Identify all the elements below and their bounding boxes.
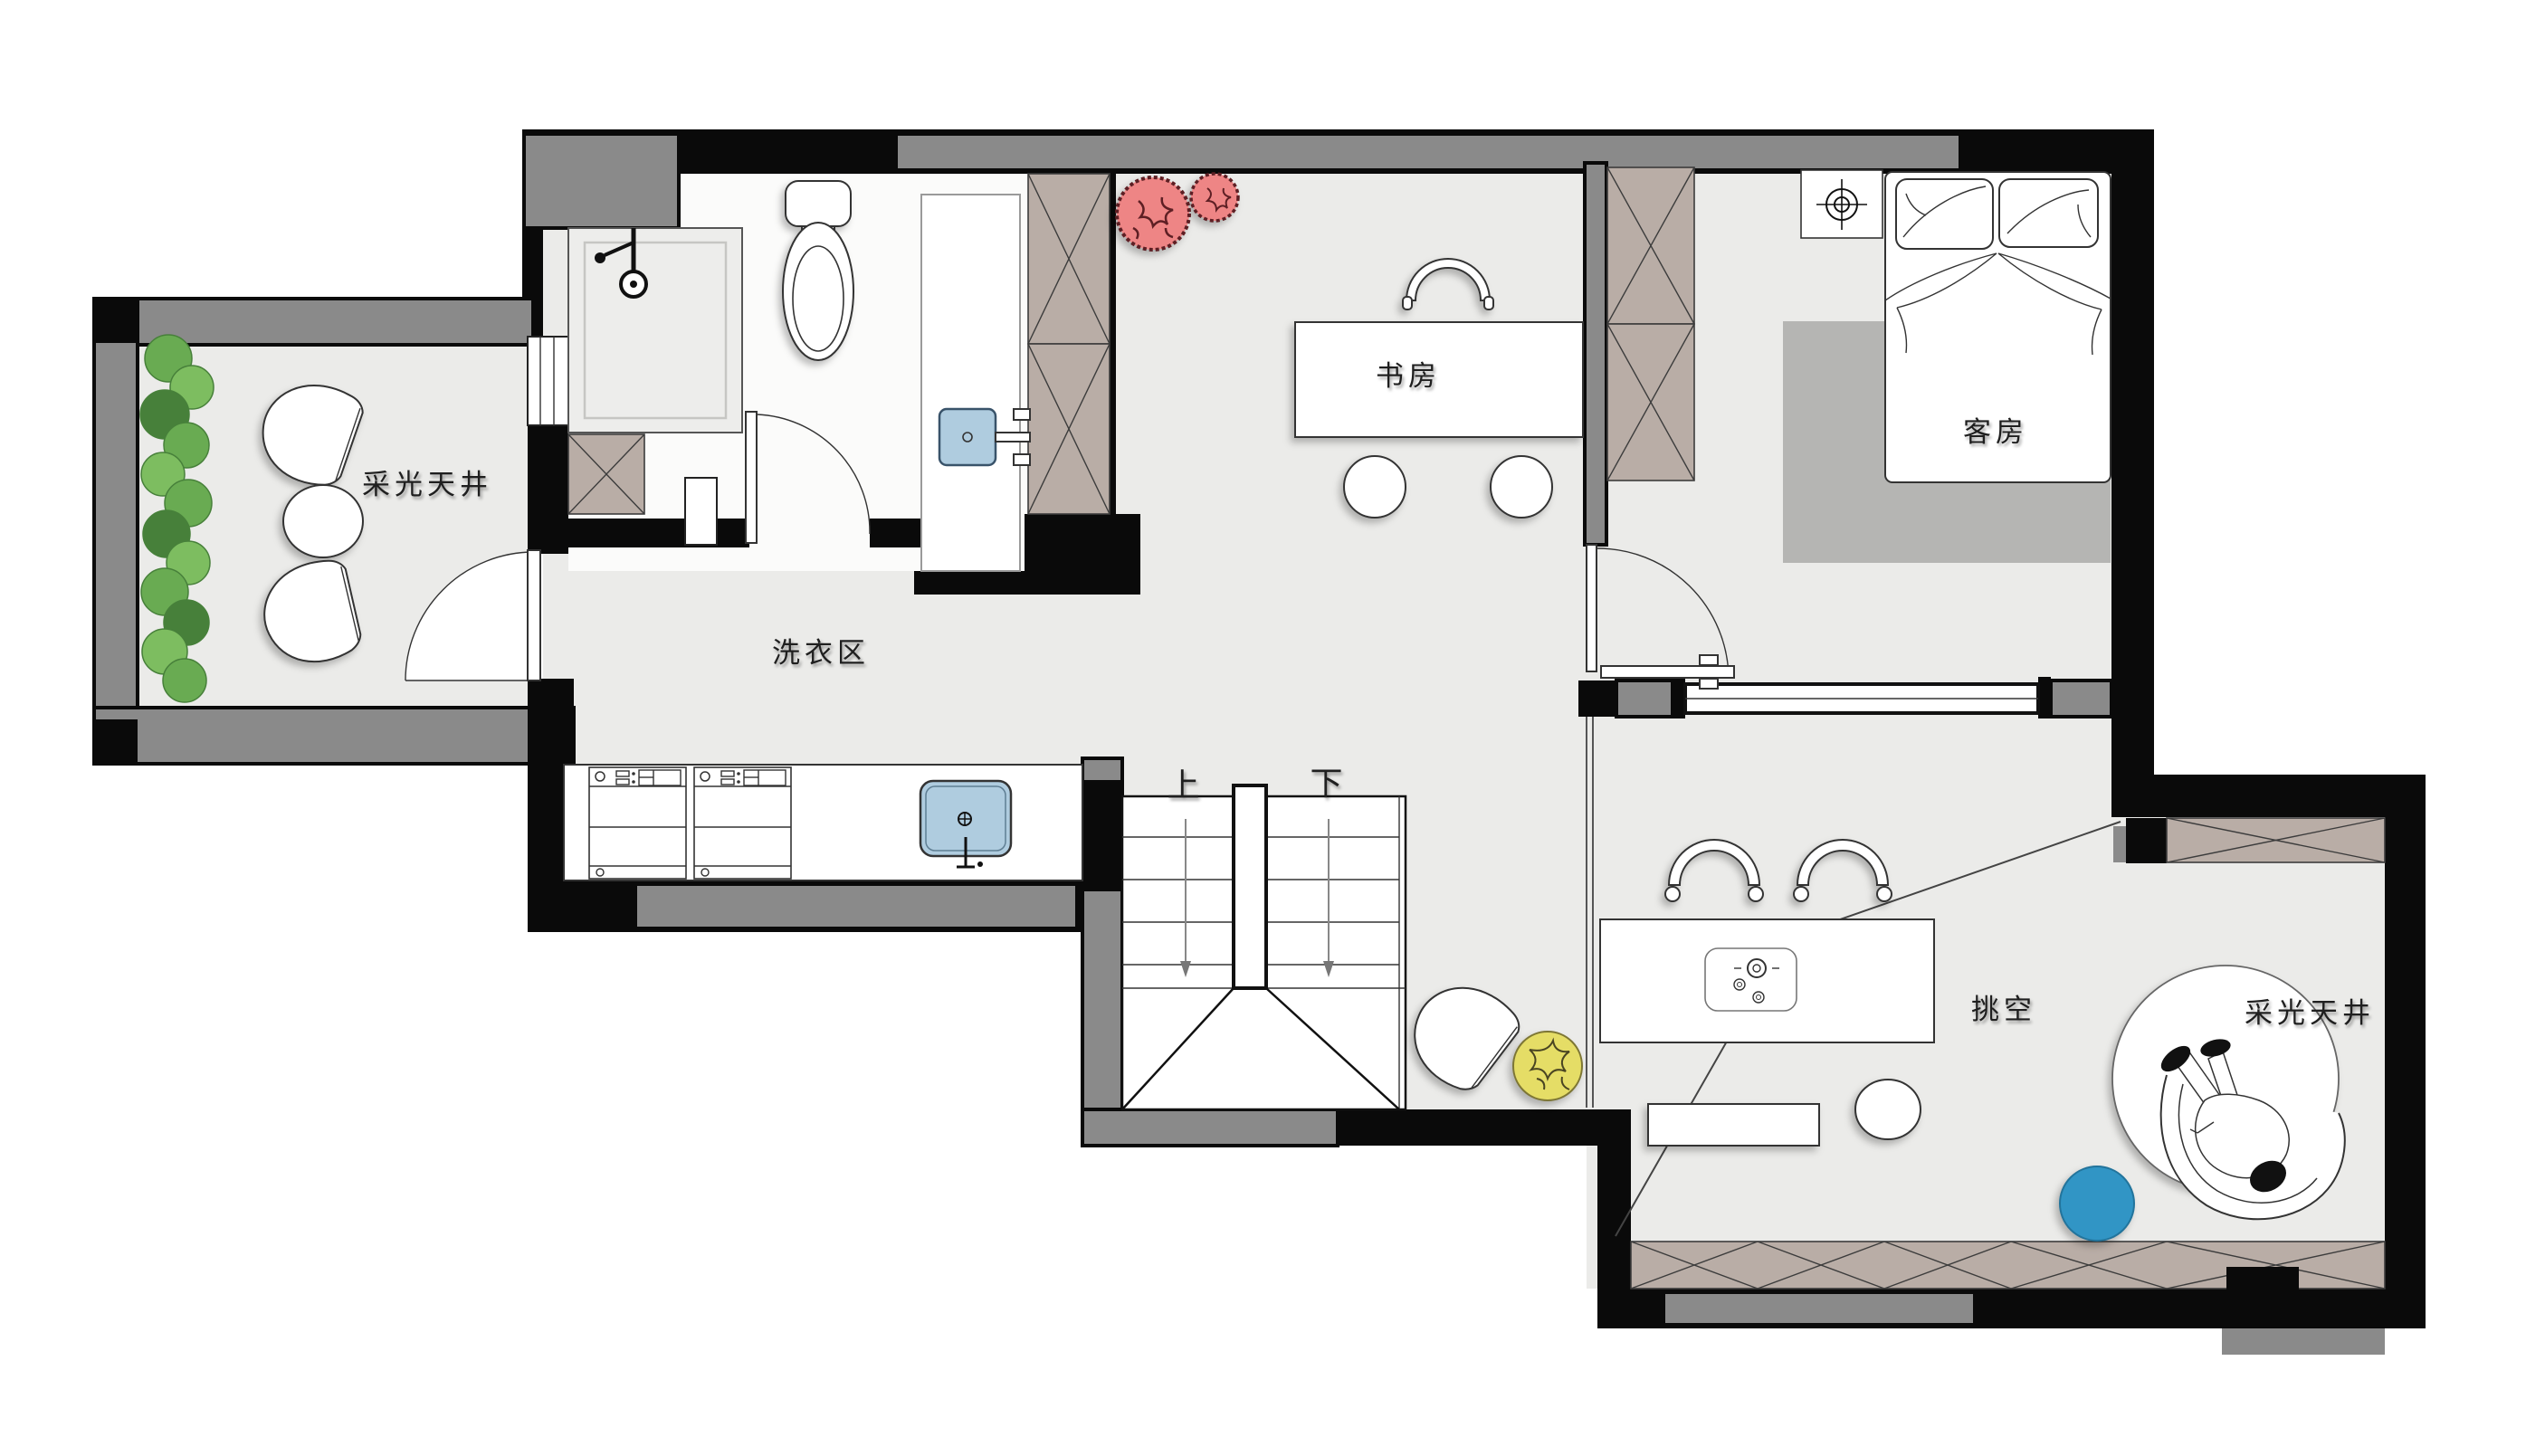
- pillow: [1896, 179, 1993, 249]
- bath-east-line: [1110, 174, 1116, 518]
- guest-south-wall-a: [1578, 680, 1616, 717]
- void-gray-sliver: [2113, 826, 2126, 862]
- study-stool: [1344, 456, 1406, 518]
- floorplan-canvas: 采光天井 洗衣区 书房 客房 上 下 挑空 采光天井: [0, 0, 2545, 1456]
- washer: [589, 767, 686, 879]
- guest-east-wall: [2111, 129, 2154, 778]
- void-ne-cabinet: [2167, 818, 2385, 862]
- void-east-wall: [2385, 775, 2426, 1328]
- vanity-faucet-icon: [996, 433, 1030, 442]
- pouf: [1855, 1080, 1921, 1139]
- terrace-south-wall: [94, 708, 574, 764]
- railing-post-west: [1673, 677, 1685, 718]
- terrace-window: [528, 337, 568, 425]
- terrace-se-corner: [528, 679, 574, 764]
- terrace-west-wall: [94, 299, 138, 764]
- railing-post-east: [2038, 677, 2051, 718]
- void-south-wall-gray-b: [2222, 1328, 2385, 1355]
- shower-duct-cabinet: [568, 434, 644, 514]
- label-stairs-down: 下: [1310, 765, 1347, 802]
- label-void: 挑空: [1971, 994, 2036, 1025]
- dryer: [694, 767, 791, 879]
- laundry-counter: [564, 765, 1082, 880]
- void-north-wall: [2111, 775, 2426, 817]
- void-railing: [1685, 684, 2038, 713]
- label-stairs-up: 上: [1167, 766, 1204, 804]
- shower: [568, 228, 742, 433]
- label-laundry: 洗衣区: [772, 637, 870, 669]
- bar-island: [1600, 919, 1934, 1042]
- island-sink: [1705, 948, 1797, 1011]
- bathroom-wardrobe: [1028, 174, 1110, 514]
- label-guest-room: 客房: [1963, 416, 2028, 448]
- toilet: [783, 181, 853, 360]
- blue-rug: [2060, 1166, 2134, 1241]
- stair-divider: [1234, 785, 1266, 988]
- bath-s-wall-stub: [914, 571, 1025, 595]
- nw-corner-block: [524, 134, 679, 228]
- guest-south-wall-c: [2051, 680, 2111, 717]
- label-skylight-left: 采光天井: [362, 469, 492, 500]
- void-nw-step: [2126, 818, 2167, 863]
- laundry-south-wall-gray: [637, 886, 1075, 927]
- void-south-wall-gray-a: [1665, 1294, 1973, 1323]
- study-guest-partition: [1585, 163, 1606, 545]
- ceiling-unit-icon: [1801, 170, 1883, 238]
- vanity: [921, 195, 1030, 571]
- guest-wardrobe: [1607, 167, 1694, 481]
- floorplan-page: 采光天井 洗衣区 书房 客房 上 下 挑空 采光天井: [0, 0, 2545, 1456]
- vanity-sink: [939, 409, 996, 465]
- stair-west-wall-black: [1082, 780, 1122, 891]
- plant-yellow: [1513, 1032, 1582, 1100]
- stairs: [1122, 785, 1406, 1109]
- guest-south-wall-b: [1616, 680, 1673, 717]
- terrace-table: [283, 485, 363, 557]
- bath-south-wall-east: [870, 519, 925, 547]
- void-south-window-band: [1631, 1242, 2385, 1290]
- bath-se-wall: [1025, 514, 1140, 595]
- label-study: 书房: [1376, 360, 1441, 392]
- terrace-nw-corner: [94, 299, 138, 343]
- pillow: [1999, 179, 2098, 247]
- stair-south-wall-black: [1338, 1109, 1631, 1146]
- study-stool: [1491, 456, 1552, 518]
- terrace-sw-corner: [94, 719, 138, 764]
- bench: [1648, 1104, 1819, 1146]
- kitchen-sink: [920, 781, 1011, 867]
- stair-south-wall-gray: [1082, 1109, 1338, 1146]
- label-skylight-right: 采光天井: [2245, 997, 2375, 1029]
- bath-wall-niche: [685, 478, 717, 545]
- north-wall-gray: [898, 136, 1959, 168]
